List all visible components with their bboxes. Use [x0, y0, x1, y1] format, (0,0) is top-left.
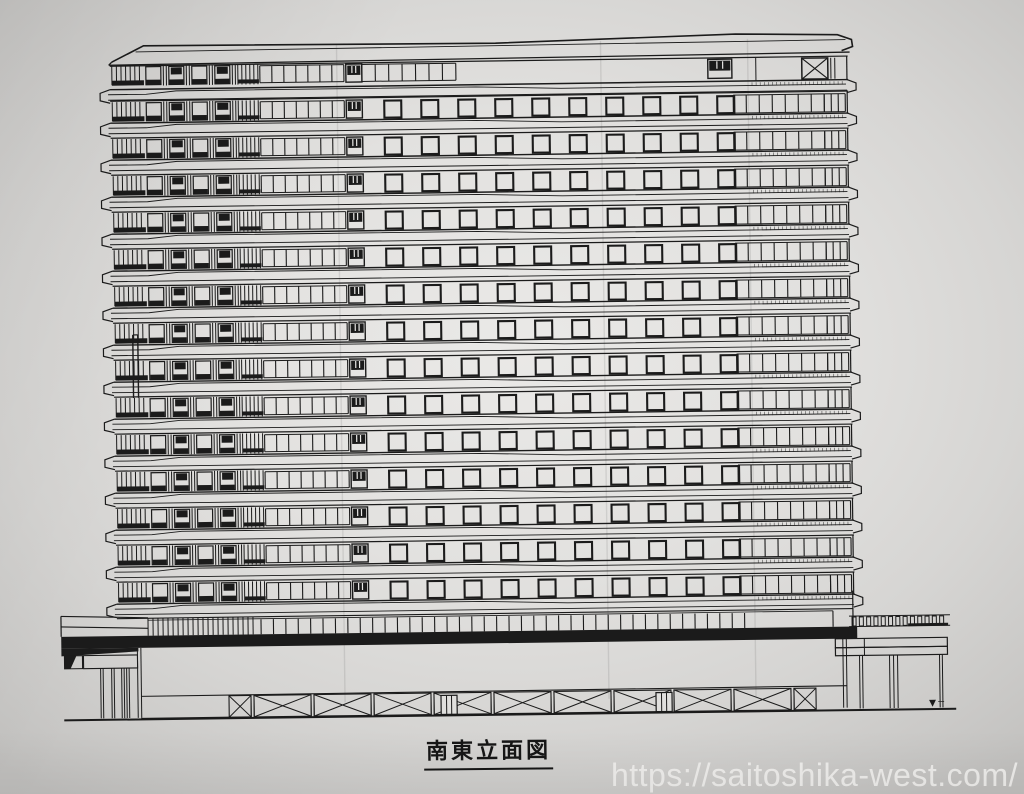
- watermark-url: https://saitoshika-west.com/: [611, 757, 1018, 794]
- podium: [140, 639, 847, 719]
- left-canopy: [64, 648, 141, 719]
- photo-of-elevation-drawing: ▼ 南東立面図 https://saitoshika-west.com/: [0, 0, 1024, 794]
- elevation-drawing: ▼: [0, 0, 1024, 794]
- drawing-rotated: ▼: [53, 31, 956, 720]
- parapet: [108, 33, 852, 66]
- ground: ▼: [64, 698, 956, 720]
- svg-text:▼: ▼: [929, 698, 936, 708]
- floor-band: [106, 572, 862, 618]
- grade-marker: ▼: [929, 698, 944, 708]
- drawing-caption: 南東立面図: [424, 732, 553, 770]
